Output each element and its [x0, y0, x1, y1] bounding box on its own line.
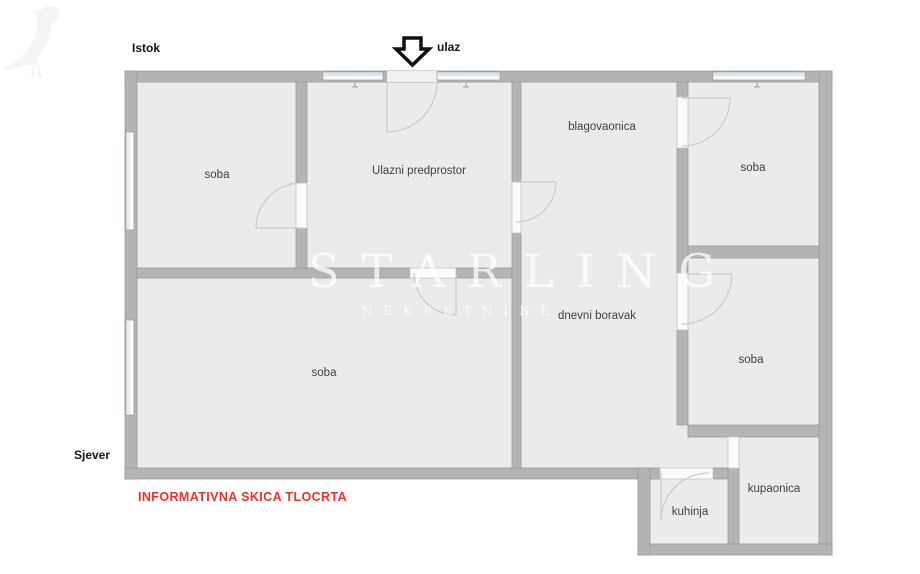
room-label-soba-middle-right: soba [739, 354, 764, 366]
room-label-blagovaonica: blagovaonica [568, 121, 636, 133]
window-top-left [323, 72, 383, 80]
window-top-middle [437, 72, 500, 80]
entrance-opening [387, 71, 437, 82]
entrance-arrow-icon [396, 38, 429, 65]
room-label-ulazni-predprostor: Ulazni predprostor [372, 165, 466, 177]
room-label-soba-top-left: soba [205, 169, 230, 181]
disclaimer-text: INFORMATIVNA SKICA TLOCRTA [138, 490, 347, 504]
floor-plan-canvas: STARLING NEKRETNINE Istok ulaz Sjever IN… [0, 0, 920, 574]
starling-bird-icon [0, 0, 72, 80]
entrance-label: ulaz [437, 40, 460, 54]
room-label-soba-large: soba [312, 367, 337, 379]
east-compass-label: Istok [132, 41, 160, 55]
room-label-dnevni-boravak: dnevni boravak [558, 310, 636, 322]
north-compass-label: Sjever [74, 448, 110, 462]
window-top-right [713, 72, 805, 80]
room-label-soba-top-right: soba [741, 162, 766, 174]
window-left-lower [126, 320, 134, 415]
room-label-kupaonica: kupaonica [748, 483, 800, 495]
window-left-upper [126, 132, 134, 230]
room-label-kuhinja: kuhinja [672, 506, 708, 518]
watermark-brand: STARLING [308, 248, 737, 294]
watermark-subtitle: NEKRETNINE [362, 304, 561, 318]
